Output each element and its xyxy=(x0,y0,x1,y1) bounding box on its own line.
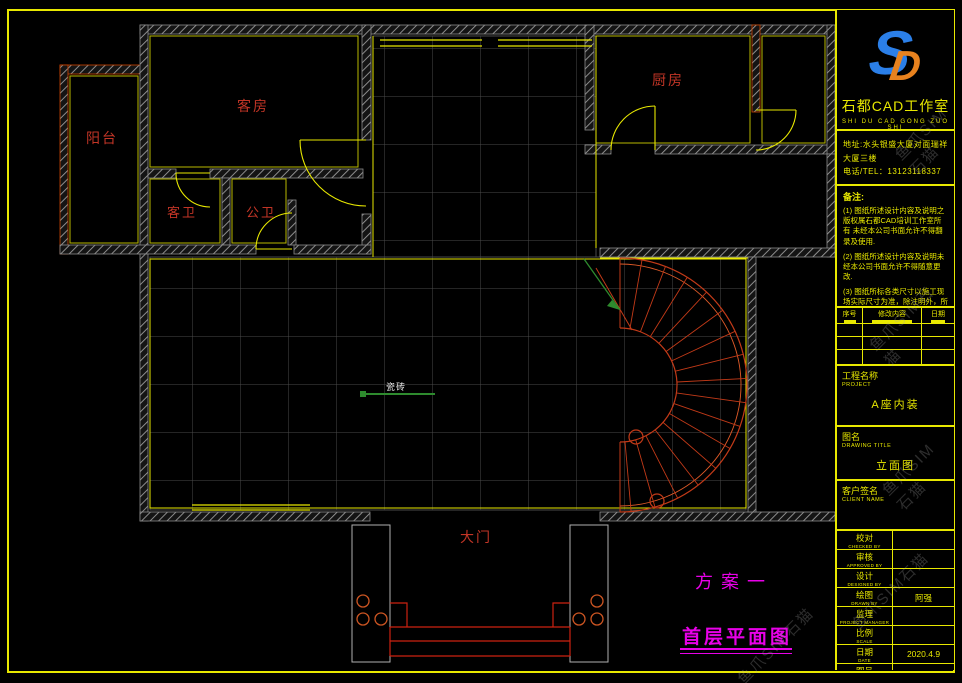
revision-cell xyxy=(863,324,922,337)
notes-title: 备注: xyxy=(843,191,948,203)
client-section: 客户签名 CLIENT NAME xyxy=(837,481,954,531)
fields-table: 校对CHECKED BY 审核APPROVED BY 设计DESIGNED BY… xyxy=(837,531,954,670)
revision-cell xyxy=(837,337,863,350)
field-label: 校对 xyxy=(837,532,892,544)
title-block: SD 石都CAD工作室 SHI DU CAD GONG ZUO SHI 地址:水… xyxy=(835,10,954,670)
field-sublabel: PROJECT MANAGER xyxy=(837,620,892,625)
room-label-public-bath: 公卫 xyxy=(246,202,276,221)
revision-cell xyxy=(922,337,954,350)
field-label: 设计 xyxy=(837,570,892,582)
revision-table: 序号 修改内容 日期 xyxy=(837,308,954,366)
drawing-title-value: 立面图 xyxy=(837,457,954,473)
field-label: 图号 xyxy=(837,665,892,670)
field-sublabel: APPROVED BY xyxy=(837,563,892,568)
field-row: 审核APPROVED BY xyxy=(837,550,954,569)
field-sublabel: SCALE xyxy=(837,639,892,644)
project-label: 工程名称 xyxy=(837,366,954,382)
drawing-title-section: 图名 DRAWING TITLE 立面图 xyxy=(837,427,954,481)
scheme-title: 方案一 xyxy=(695,568,773,594)
field-row: 设计DESIGNED BY xyxy=(837,569,954,588)
room-label-guest-room: 客房 xyxy=(237,96,269,116)
phone-line: 电话/TEL：13123118337 xyxy=(843,165,948,179)
field-label: 审核 xyxy=(837,551,892,563)
address-section: 地址:水头银盛大厦对面瑞祥 大厦三楼 电话/TEL：13123118337 xyxy=(837,131,954,186)
revision-cell xyxy=(837,324,863,337)
field-row: 日期DATE 2020.4.9 xyxy=(837,645,954,664)
revision-header-description: 修改内容 xyxy=(863,308,922,324)
room-label-kitchen: 厨房 xyxy=(652,70,684,90)
field-value xyxy=(893,550,954,568)
revision-cell xyxy=(922,350,954,364)
floor-plan-svg xyxy=(0,0,962,683)
studio-logo-icon: SD xyxy=(837,18,954,94)
note-item: (1) 图纸所述设计内容及说明之版权属石都CAD培训工作室所有 未经本公司书面允… xyxy=(843,206,948,247)
notes-section: 备注: (1) 图纸所述设计内容及说明之版权属石都CAD培训工作室所有 未经本公… xyxy=(837,186,954,308)
room-label-balcony: 阳台 xyxy=(86,128,118,148)
address-line-2: 大厦三楼 xyxy=(843,152,948,166)
plan-title-underline xyxy=(680,648,792,650)
revision-cell xyxy=(922,324,954,337)
title-block-logo-section: SD 石都CAD工作室 SHI DU CAD GONG ZUO SHI xyxy=(837,10,954,131)
client-label: 客户签名 xyxy=(837,481,954,497)
field-value xyxy=(893,569,954,587)
field-value xyxy=(893,607,954,625)
field-value: 2020.4.9 xyxy=(893,645,954,663)
project-section: 工程名称 PROJECT A座内装 xyxy=(837,366,954,427)
field-value xyxy=(893,626,954,644)
drawing-title-label: 图名 xyxy=(837,427,954,443)
field-row: 监理PROJECT MANAGER xyxy=(837,607,954,626)
field-label: 绘图 xyxy=(837,589,892,601)
field-label: 比例 xyxy=(837,627,892,639)
studio-name-pinyin: SHI DU CAD GONG ZUO SHI xyxy=(837,119,954,131)
client-sublabel: CLIENT NAME xyxy=(837,497,954,503)
field-sublabel: DATE xyxy=(837,658,892,663)
studio-name: 石都CAD工作室 xyxy=(837,96,954,116)
field-value xyxy=(893,531,954,549)
revision-cell xyxy=(863,350,922,364)
drawing-title-sublabel: DRAWING TITLE xyxy=(837,443,954,449)
project-sublabel: PROJECT xyxy=(837,382,954,388)
field-sublabel: CHECKED BY xyxy=(837,544,892,549)
logo-letter-d: D xyxy=(887,42,924,90)
field-label: 监理 xyxy=(837,608,892,620)
revision-header-date: 日期 xyxy=(922,308,954,324)
note-item: (3) 图纸所标各类尺寸以施工现场实际尺寸为准，除注明外，所有尺寸均以毫米表示. xyxy=(843,287,948,308)
revision-cell xyxy=(863,337,922,350)
room-label-guest-bath: 客卫 xyxy=(167,202,197,221)
revision-header-no: 序号 xyxy=(837,308,863,324)
field-row: 图号DRAWING No SD-05 xyxy=(837,664,954,670)
field-label: 日期 xyxy=(837,646,892,658)
cad-drawing-canvas: 阳台 客房 客卫 公卫 厨房 大门 瓷砖 方案一 首层平面图 鱼爪SIM石猫 鱼… xyxy=(0,0,962,683)
field-sublabel: DESIGNED BY xyxy=(837,582,892,587)
field-sublabel: DRAWN BY xyxy=(837,601,892,606)
field-row: 比例SCALE xyxy=(837,626,954,645)
tile-annotation: 瓷砖 xyxy=(386,380,406,393)
note-item: (2) 图纸所述设计内容及说明未经本公司书面允许不得随意更改. xyxy=(843,252,948,282)
room-label-main-gate: 大门 xyxy=(460,527,492,547)
field-value: 阿强 xyxy=(893,588,954,606)
revision-cell xyxy=(837,350,863,364)
plan-title: 首层平面图 xyxy=(682,622,792,649)
field-value: SD-05 xyxy=(893,664,954,670)
field-row: 校对CHECKED BY xyxy=(837,531,954,550)
address-line-1: 地址:水头银盛大厦对面瑞祥 xyxy=(843,138,948,152)
project-value: A座内装 xyxy=(837,396,954,412)
plan-title-underline-2 xyxy=(680,653,792,654)
field-row: 绘图DRAWN BY 阿强 xyxy=(837,588,954,607)
